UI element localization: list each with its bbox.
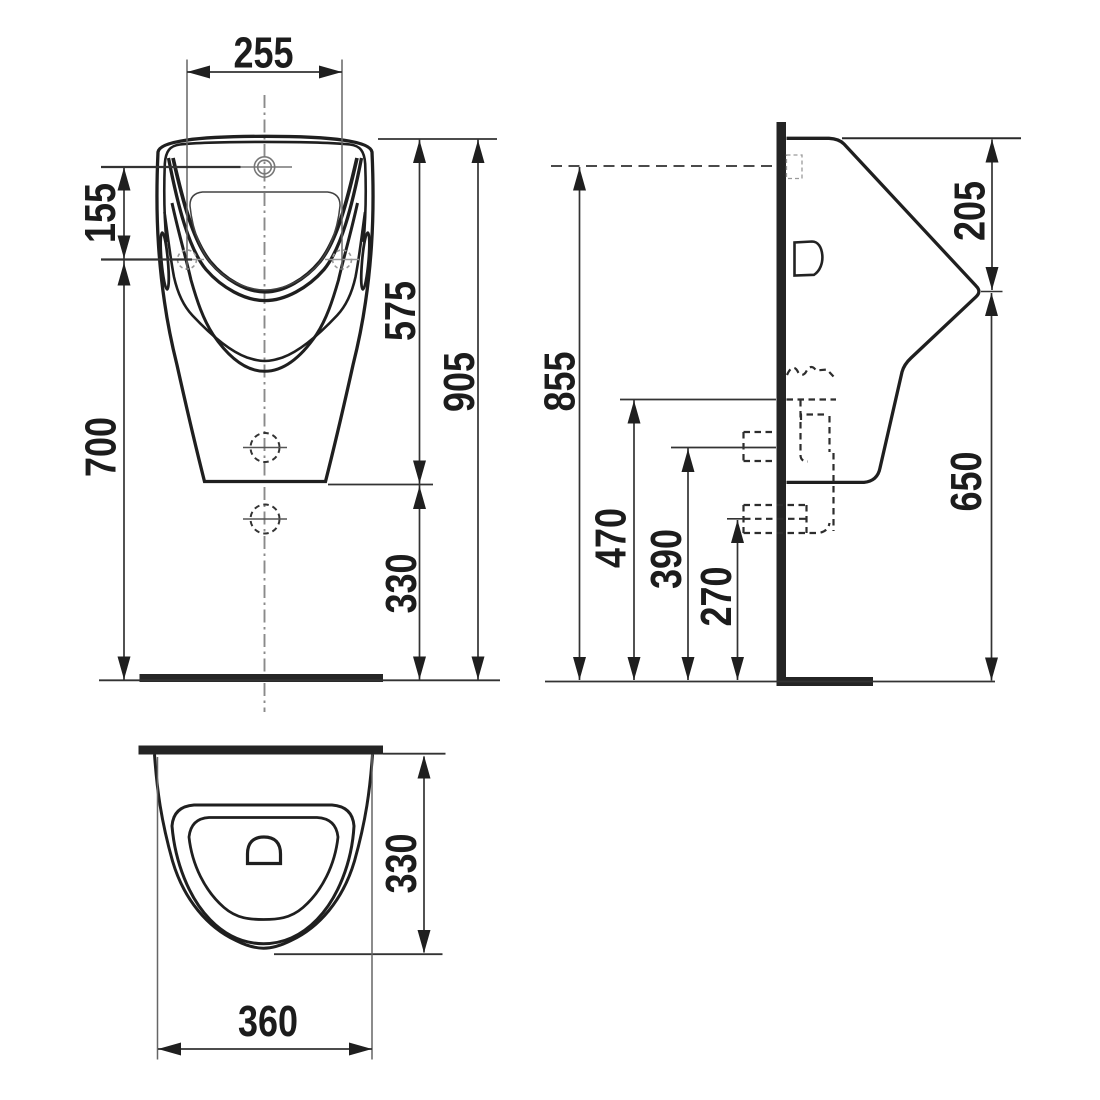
svg-text:330: 330 <box>377 834 426 894</box>
svg-text:155: 155 <box>76 183 125 243</box>
svg-text:470: 470 <box>587 508 636 568</box>
svg-text:255: 255 <box>234 29 294 78</box>
svg-text:360: 360 <box>238 997 298 1046</box>
svg-text:575: 575 <box>376 281 425 341</box>
svg-text:205: 205 <box>946 181 995 241</box>
svg-text:390: 390 <box>642 529 691 589</box>
svg-text:650: 650 <box>942 452 991 512</box>
svg-text:330: 330 <box>377 554 426 614</box>
svg-text:905: 905 <box>435 352 484 412</box>
svg-text:270: 270 <box>692 567 741 627</box>
svg-text:855: 855 <box>536 352 585 412</box>
svg-text:700: 700 <box>77 417 126 477</box>
